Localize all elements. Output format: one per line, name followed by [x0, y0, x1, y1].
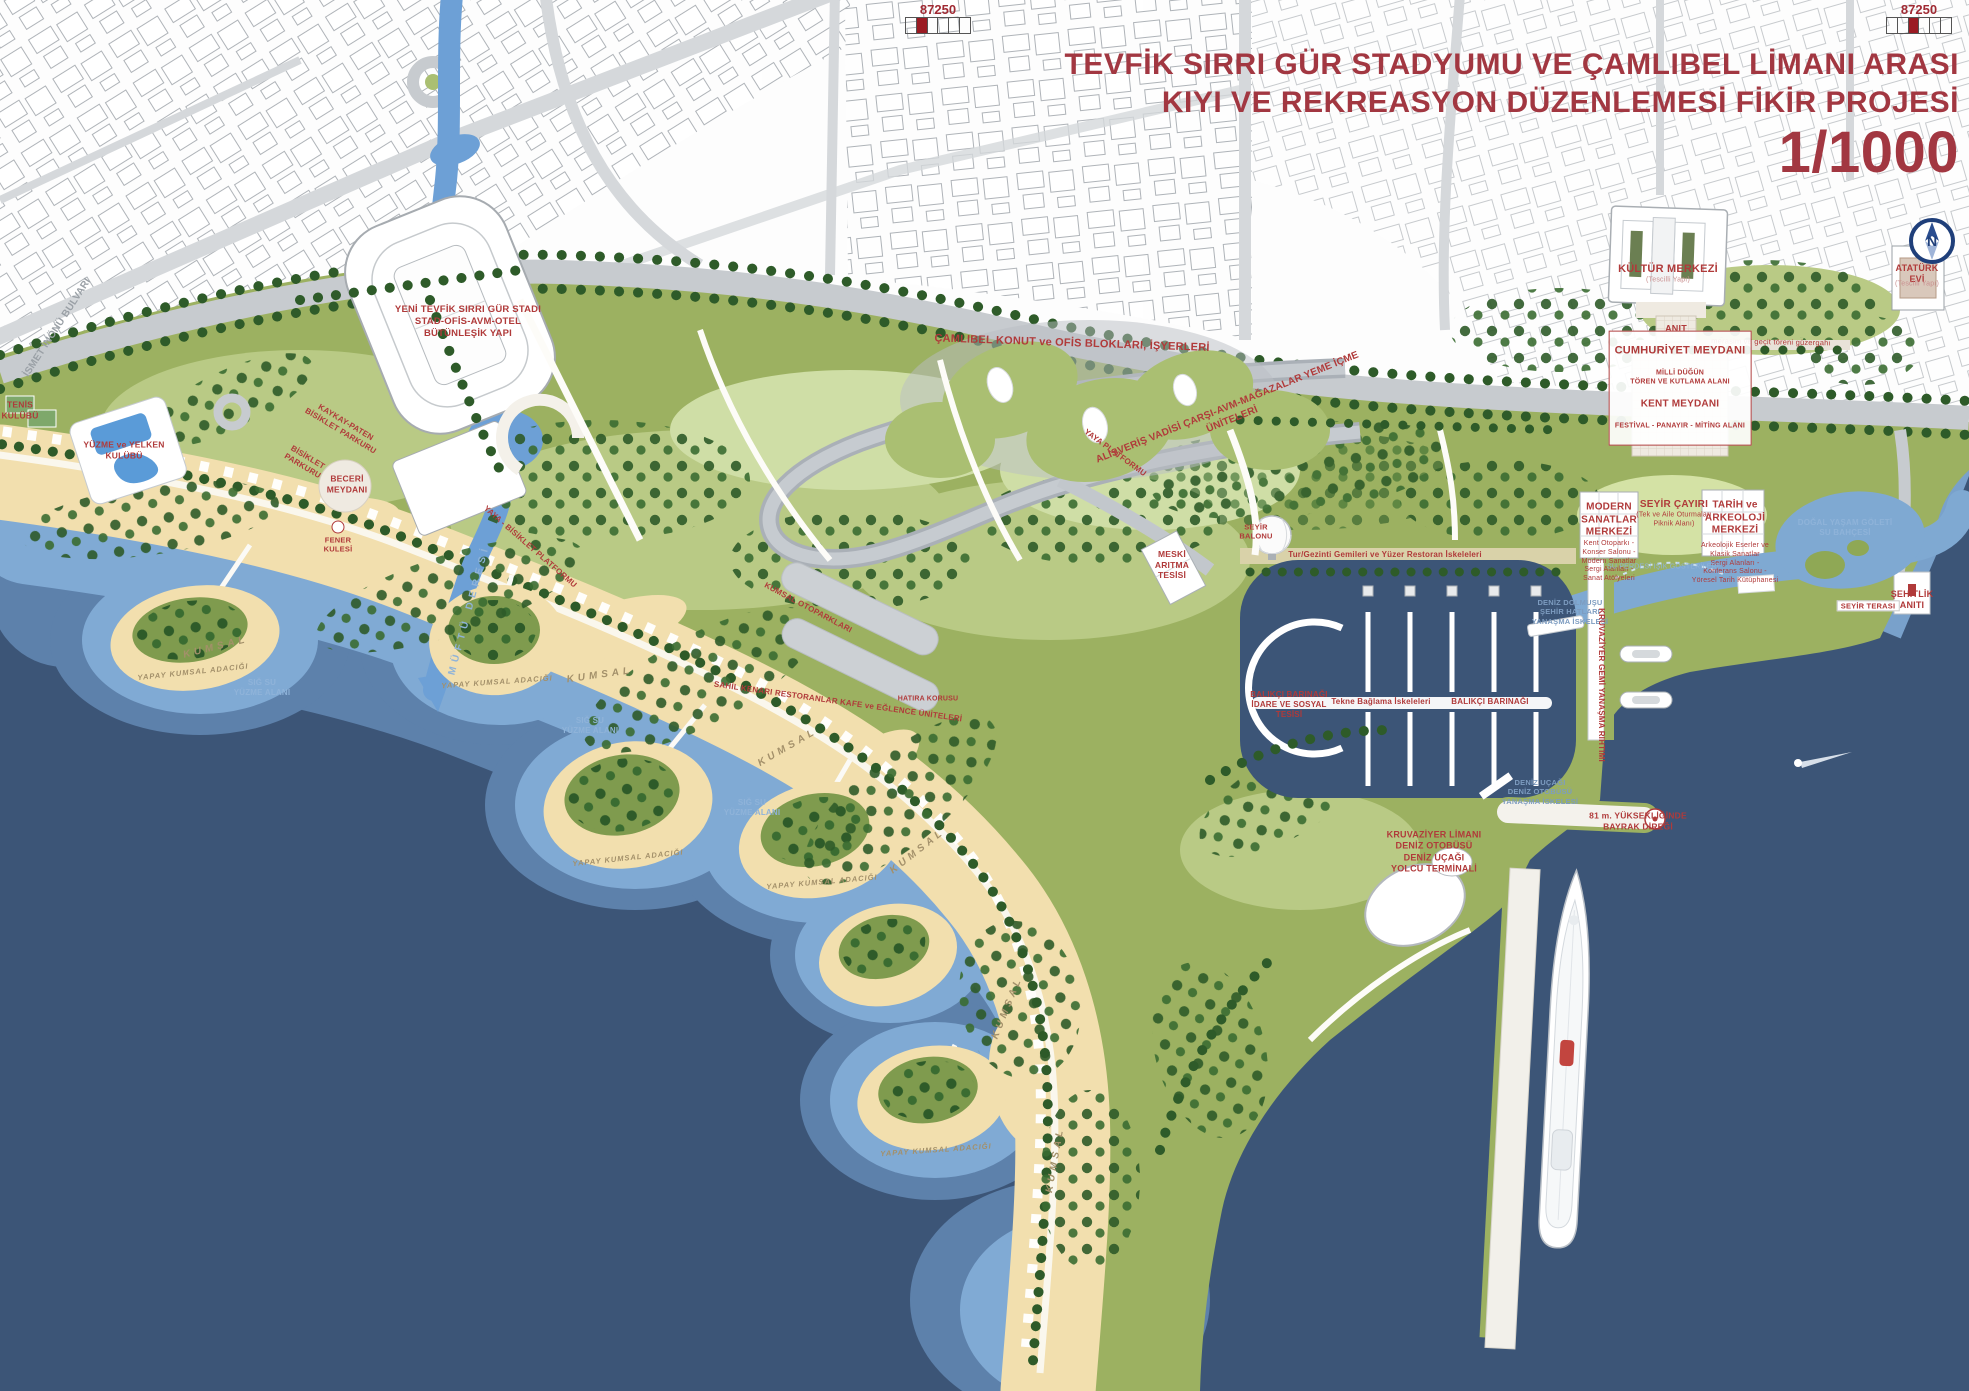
- marina: [1240, 548, 1614, 798]
- title-line1: TEVFİK SIRRI GÜR STADYUMU VE ÇAMLIBEL Lİ…: [1065, 46, 1959, 84]
- flag-pier: [1508, 809, 1665, 829]
- sheet-marker-left: 87250: [905, 3, 971, 34]
- site-plan: TEVFİK SIRRI GÜR STADYUMU VE ÇAMLIBEL Lİ…: [0, 0, 1969, 1391]
- lighthouse: [332, 521, 344, 533]
- title-block: TEVFİK SIRRI GÜR STADYUMU VE ÇAMLIBEL Lİ…: [1065, 46, 1959, 184]
- sheet-marker-right: 87250: [1886, 3, 1952, 34]
- map-artwork: [0, 0, 1969, 1391]
- modern-arts-center: [1580, 492, 1638, 558]
- north-arrow-icon: N: [1907, 216, 1957, 266]
- culture-center: [1608, 206, 1727, 306]
- sheet-grid-icon: [905, 17, 971, 34]
- sheet-number: 87250: [1886, 3, 1952, 17]
- title-line2: KIYI VE REKREASYON DÜZENLEMESİ FİKİR PRO…: [1065, 84, 1959, 122]
- sheet-grid-icon: [1886, 17, 1952, 34]
- title-scale: 1/1000: [1065, 123, 1959, 184]
- sheet-number: 87250: [905, 3, 971, 17]
- martyrs-monument: [1894, 572, 1930, 614]
- cumhuriyet-plaza: [1632, 352, 1728, 456]
- svg-text:N: N: [1927, 233, 1937, 249]
- anit-plaza: [1656, 316, 1696, 342]
- history-archaeology-center: [1702, 490, 1764, 556]
- skill-square: [319, 460, 371, 512]
